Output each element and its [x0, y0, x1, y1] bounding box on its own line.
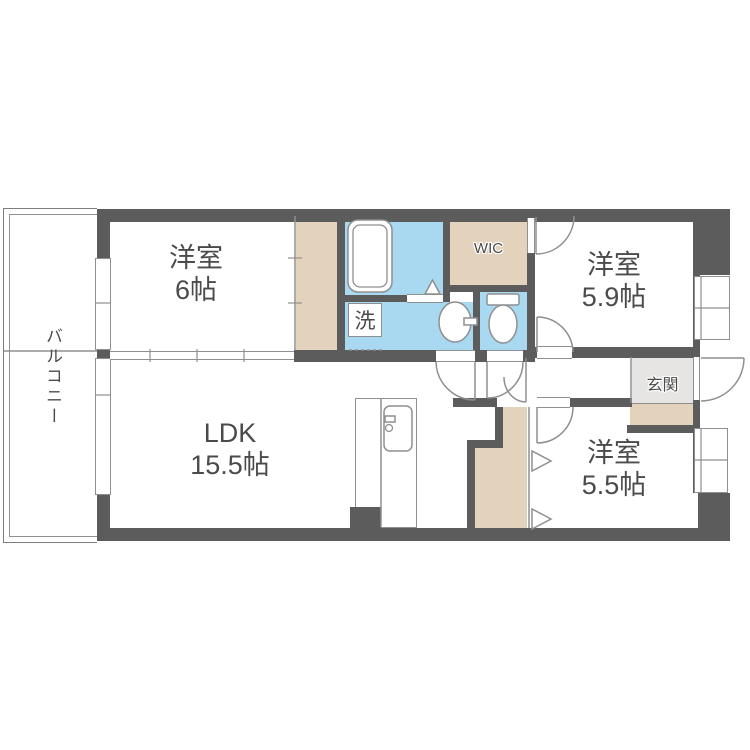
label-ldk-size: 15.5帖 [130, 450, 330, 482]
label-bedroom6-size: 6帖 [116, 275, 276, 307]
wall-closet55-step [467, 440, 503, 448]
door-opening-toilet [487, 350, 523, 362]
kitchen-counter-base [350, 507, 381, 528]
room-toilet [480, 292, 527, 350]
wall-top [97, 209, 723, 222]
label-bedroom59-type: 洋室 [534, 250, 694, 282]
wall-corridor-south-east [570, 398, 632, 407]
wall-closet-bath [337, 222, 345, 350]
door-opening-entrance [693, 357, 700, 400]
door-opening-washroom [436, 350, 475, 362]
wall-bottom [97, 528, 730, 541]
wall-washroom-toilet [473, 292, 480, 352]
wall-entrance-bedroom55 [627, 425, 700, 433]
door-opening-bathroom [407, 294, 443, 303]
label-bedroom55-size: 5.5帖 [534, 470, 694, 502]
label-bedroom55: 洋室 5.5帖 [534, 438, 694, 502]
wall-bottom-right-block [698, 493, 730, 528]
wall-corridor-south-west [453, 398, 497, 407]
toilet-door-swing [487, 362, 523, 398]
washer-box: 洗 [348, 303, 382, 337]
closet55-fold-triangle-bottom [532, 509, 551, 529]
door-opening-wic [527, 218, 535, 253]
label-laundry: 洗 [355, 305, 376, 335]
label-bedroom59: 洋室 5.9帖 [534, 250, 694, 314]
wall-left-lower [97, 495, 110, 528]
wall-closet6-bottom [294, 350, 337, 362]
wall-closet55-left [467, 448, 475, 528]
shoe-cabinet [630, 403, 695, 425]
label-wic: WIC [450, 240, 527, 257]
floor-plan: 洋室 6帖 洋室 5.9帖 LDK 15.5帖 洋室 5.5帖 WIC 玄関 洗… [0, 0, 750, 750]
wall-left-upper [97, 209, 110, 258]
door-opening-bedroom59 [537, 346, 572, 359]
label-bedroom6-type: 洋室 [116, 243, 276, 275]
label-entrance: 玄関 [632, 371, 693, 395]
label-bedroom6: 洋室 6帖 [116, 243, 276, 307]
wall-top-right-block [693, 209, 730, 275]
window-bedroom55 [694, 428, 728, 493]
label-ldk-type: LDK [130, 418, 330, 450]
window-ldk [95, 358, 111, 495]
wall-left-mid [97, 350, 110, 358]
label-ldk: LDK 15.5帖 [130, 418, 330, 482]
window-bedroom6 [95, 258, 111, 350]
wall-wic-toilet [443, 285, 535, 292]
closet-bedroom6 [296, 222, 337, 350]
door-opening-bedroom55 [537, 397, 570, 408]
label-balcony: バルコニー [40, 327, 65, 437]
closet-bedroom55-lower [475, 448, 527, 528]
closet-bedroom55-upper [503, 407, 527, 448]
label-bedroom59-size: 5.9帖 [534, 282, 694, 314]
label-bedroom55-type: 洋室 [534, 438, 694, 470]
entrance-door-swing [701, 358, 744, 401]
corridor-door [504, 358, 526, 402]
room-bathroom [345, 222, 443, 295]
sliding-partition-bedroom6-ldk [110, 351, 294, 360]
washroom-door-swing [436, 362, 475, 400]
window-bedroom59 [694, 276, 730, 340]
